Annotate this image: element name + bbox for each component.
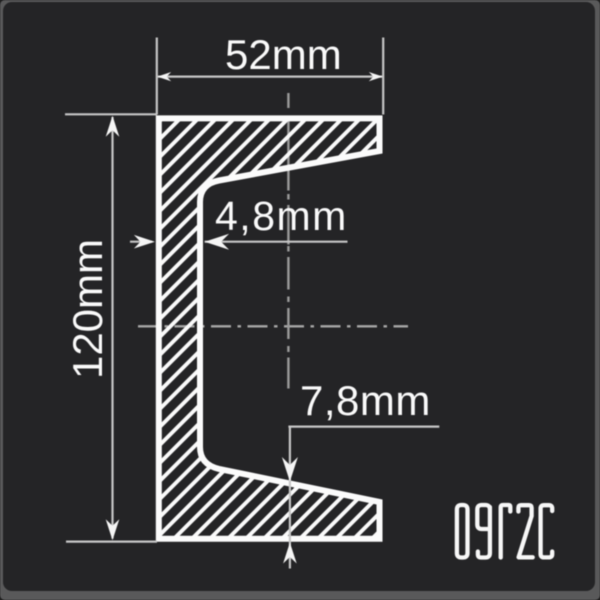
svg-text:120mm: 120mm [64,239,111,379]
svg-text:4,8mm: 4,8mm [215,193,348,239]
svg-text:52mm: 52mm [225,31,342,78]
svg-text:7,8mm: 7,8mm [300,377,431,424]
